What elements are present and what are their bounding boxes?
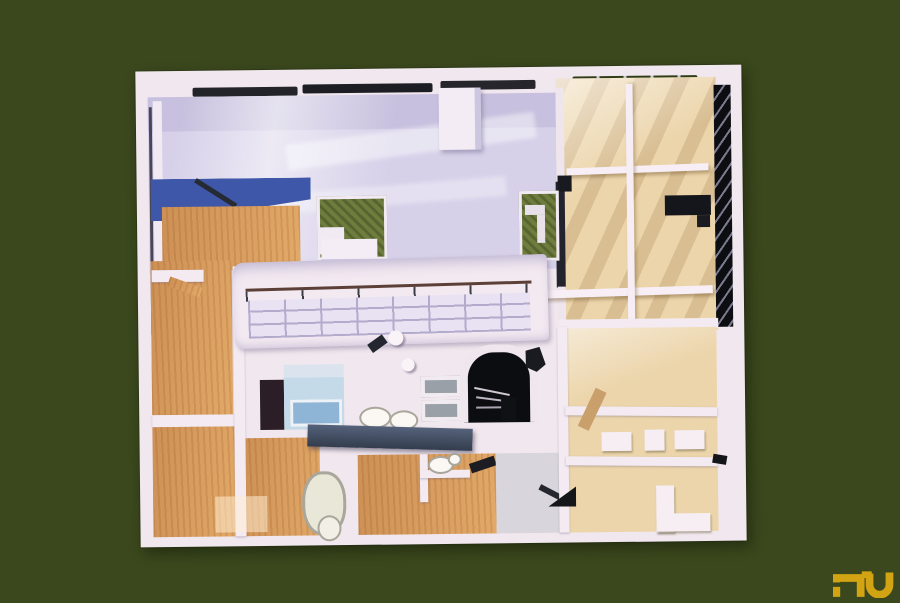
black-chair — [525, 347, 545, 372]
small-fixture — [317, 515, 341, 541]
rooftop-box — [439, 88, 482, 150]
column-top — [402, 358, 415, 371]
shelf-stair-boxes — [421, 376, 464, 422]
photo-architectural-model — [0, 0, 900, 600]
sunken-bathtub — [290, 399, 342, 427]
floor-light-patch — [215, 496, 267, 533]
ribbon-window-slot — [302, 83, 432, 93]
furniture-box — [644, 429, 664, 450]
slate-counter — [307, 424, 473, 450]
terrace-bench-foot — [697, 215, 710, 227]
furniture-box — [601, 432, 631, 451]
interior-wall — [152, 414, 234, 427]
logo-glyph-u — [870, 572, 890, 594]
stair-well-tail — [501, 397, 516, 421]
logo-glyph-n-notch — [833, 582, 841, 586]
skylight-glass-grid — [248, 293, 531, 339]
garden-planter-right-inner — [525, 205, 545, 215]
toilet-small-circle — [448, 453, 462, 466]
model-base — [135, 65, 746, 548]
column-top — [388, 330, 403, 345]
terrace-dark-box — [558, 176, 572, 192]
shelf-box — [421, 376, 461, 397]
l-shaped-counter-horizontal — [656, 513, 710, 532]
shelf-box — [421, 400, 461, 421]
furniture-box — [674, 430, 704, 449]
divider-wall-white — [556, 88, 565, 184]
louver-screen-band — [714, 85, 734, 327]
interior-wall-horizontal — [566, 456, 718, 466]
logo-glyphs — [833, 568, 895, 598]
logo-glyph-u-tab — [862, 571, 872, 578]
logo-watermark — [833, 568, 895, 598]
garden-planter-right-inner — [537, 215, 545, 243]
bath-cabinet-dark — [260, 380, 285, 430]
stair-step-line — [474, 387, 510, 396]
logo-glyph-n — [836, 578, 860, 597]
terrace-bench-black — [665, 195, 711, 216]
